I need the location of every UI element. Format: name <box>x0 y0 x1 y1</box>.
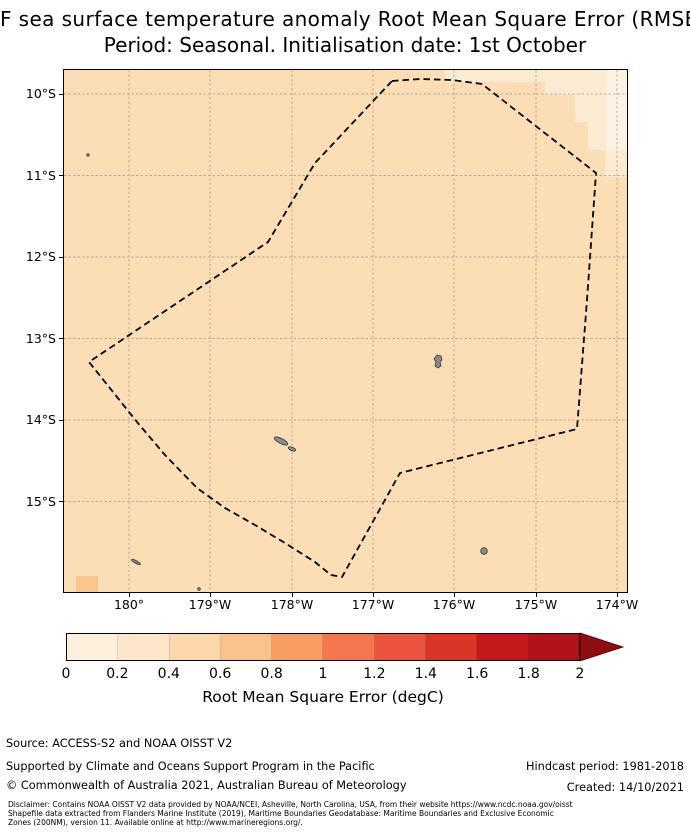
colorbar-label: Root Mean Square Error (degC) <box>66 688 580 706</box>
colorbar-tick: 0 <box>62 666 71 682</box>
colorbar-segment <box>67 634 118 660</box>
ytick-label: 10°S <box>0 86 56 101</box>
island-dot-south <box>198 588 201 591</box>
colorbar-segment <box>170 634 221 660</box>
island-dot-northwest <box>87 154 89 156</box>
ytick-label: 11°S <box>0 168 56 183</box>
ytick-mark <box>59 420 63 421</box>
ytick-label: 15°S <box>0 494 56 509</box>
xtick-label: 174°W <box>587 597 647 612</box>
created-date-text: Created: 14/10/2021 <box>567 781 684 794</box>
colorbar-segment <box>221 634 272 660</box>
eez-boundary <box>89 79 596 577</box>
colorbar-segment <box>118 634 169 660</box>
colorbar-extend-arrow <box>580 632 625 662</box>
xtick-label: 178°W <box>262 597 322 612</box>
ytick-mark <box>59 94 63 95</box>
figure-root: { "title": { "line1": "F sea surface tem… <box>0 0 690 839</box>
island-sliver-west <box>131 559 141 566</box>
xtick-label: 176°W <box>424 597 484 612</box>
colorbar-segment <box>529 634 579 660</box>
colorbar-tick: 1.6 <box>466 666 488 682</box>
map-canvas <box>64 70 627 592</box>
disclaimer-line-1: Disclaimer: Contains NOAA OISST V2 data … <box>8 800 690 809</box>
colorbar-tick: 1 <box>319 666 328 682</box>
copyright-text: © Commonwealth of Australia 2021, Austra… <box>6 779 407 792</box>
figure-title: F sea surface temperature anomaly Root M… <box>0 7 690 31</box>
island-wallis <box>434 355 442 368</box>
colorbar-tick: 1.4 <box>415 666 437 682</box>
colorbar-segment <box>477 634 528 660</box>
colorbar-segment <box>426 634 477 660</box>
disclaimer-line-3: Zones (200NM), version 11. Available onl… <box>8 818 690 827</box>
island-niuafoou <box>481 548 488 555</box>
colorbar-tick: 0.6 <box>209 666 231 682</box>
colorbar-segment <box>323 634 374 660</box>
source-text: Source: ACCESS-S2 and NOAA OISST V2 <box>6 737 232 750</box>
xtick-label: 180° <box>99 597 159 612</box>
ytick-mark <box>59 501 63 502</box>
hindcast-period-text: Hindcast period: 1981-2018 <box>526 760 684 773</box>
colorbar-tick: 2 <box>576 666 585 682</box>
xtick-label: 179°W <box>180 597 240 612</box>
rmse-darker-cell <box>76 576 98 592</box>
colorbar-segment <box>375 634 426 660</box>
disclaimer-line-2: Shapefile data extracted from Flanders M… <box>8 809 690 818</box>
xtick-label: 177°W <box>343 597 403 612</box>
colorbar-tick: 1.2 <box>363 666 385 682</box>
figure-subtitle: Period: Seasonal. Initialisation date: 1… <box>0 33 690 57</box>
ytick-label: 12°S <box>0 249 56 264</box>
islands <box>87 154 488 591</box>
map-panel <box>63 69 628 593</box>
supported-text: Supported by Climate and Oceans Support … <box>6 760 375 773</box>
colorbar-segment <box>272 634 323 660</box>
colorbar-tick: 1.8 <box>517 666 539 682</box>
island-alofi <box>288 446 297 452</box>
ytick-label: 14°S <box>0 412 56 427</box>
ytick-mark <box>59 175 63 176</box>
colorbar <box>66 633 580 661</box>
ytick-mark <box>59 338 63 339</box>
xtick-label: 175°W <box>506 597 566 612</box>
ytick-mark <box>59 257 63 258</box>
island-futuna <box>273 435 289 446</box>
colorbar-tick: 0.8 <box>260 666 282 682</box>
colorbar-tick: 0.4 <box>158 666 180 682</box>
ytick-label: 13°S <box>0 331 56 346</box>
colorbar-tick: 0.2 <box>106 666 128 682</box>
graticule <box>64 70 627 592</box>
